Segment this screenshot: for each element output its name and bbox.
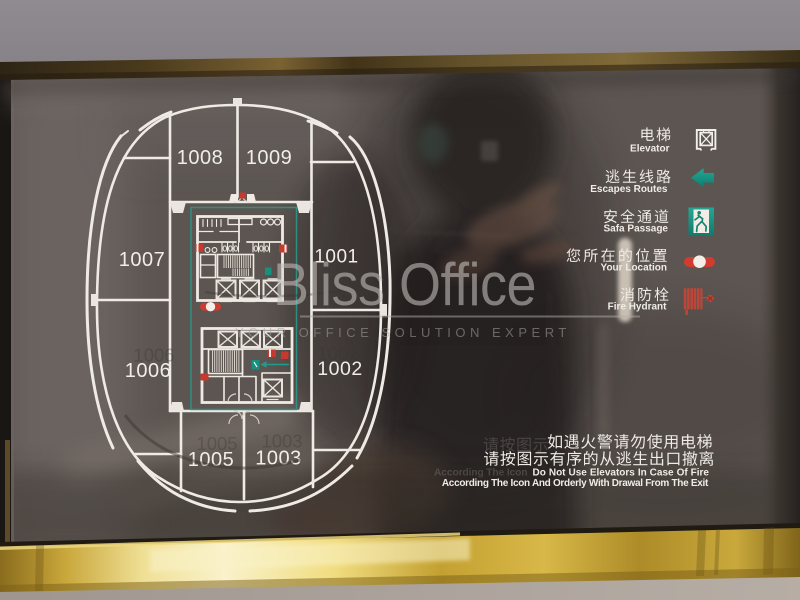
svg-text:1008: 1008 <box>177 147 224 169</box>
svg-text:1009: 1009 <box>246 147 293 169</box>
svg-text:1006: 1006 <box>133 345 174 366</box>
svg-text:Your Location: Your Location <box>601 263 667 274</box>
svg-text:YOUR OFFICE SOLUTION EXPERT: YOUR OFFICE SOLUTION EXPERT <box>235 325 571 340</box>
svg-text:Fire Hydrant: Fire Hydrant <box>608 302 668 313</box>
svg-text:Escapes Routes: Escapes Routes <box>590 184 668 195</box>
svg-text:1003: 1003 <box>261 431 302 452</box>
svg-text:Elevator: Elevator <box>630 144 670 155</box>
svg-text:1002: 1002 <box>317 343 358 364</box>
svg-text:1005: 1005 <box>196 433 237 454</box>
svg-text:1007: 1007 <box>119 249 166 271</box>
svg-text:Bliss Office: Bliss Office <box>273 251 536 319</box>
svg-text:Safa Passage: Safa Passage <box>604 224 669 235</box>
svg-text:According The Icon: According The Icon <box>434 468 527 479</box>
svg-text:According The Icon And Orderly: According The Icon And Orderly With Draw… <box>442 478 709 489</box>
